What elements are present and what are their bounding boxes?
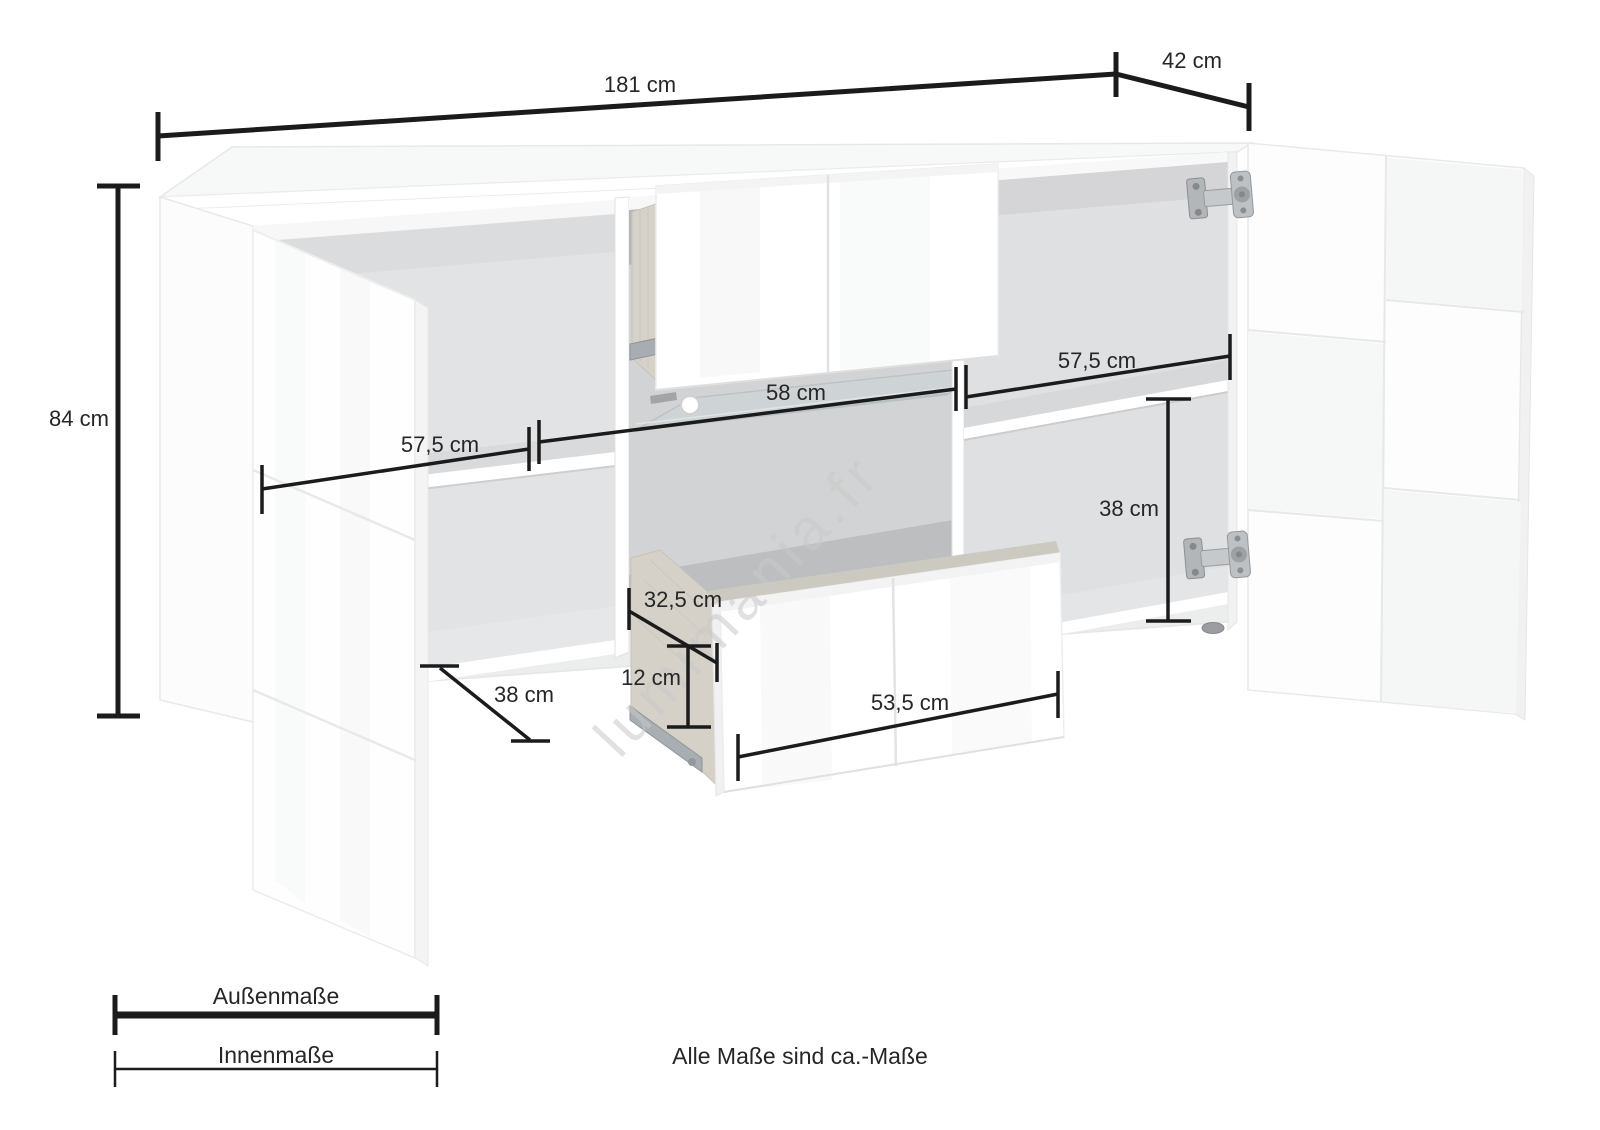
- cabinet-foot: [1202, 623, 1224, 634]
- dim-depth-total: [1116, 74, 1249, 131]
- legend-inner-label: Innenmaße: [218, 1042, 334, 1068]
- label-inner-middle-width: 58 cm: [766, 380, 826, 405]
- label-drawer-width: 53,5 cm: [871, 690, 949, 715]
- legend-outer-label: Außenmaße: [213, 983, 340, 1009]
- door-gloss: [275, 240, 305, 903]
- top-drawer: [630, 164, 998, 390]
- door-tile: [1381, 490, 1521, 714]
- label-inner-right-width: 57,5 cm: [1058, 348, 1136, 373]
- door-gloss: [340, 268, 370, 937]
- label-width-total: 181 cm: [604, 72, 676, 97]
- divider-left: [615, 197, 629, 658]
- cabinet-left-panel: [160, 197, 253, 722]
- door-tile: [1386, 158, 1524, 310]
- furniture-dimension-diagram: lumimania.fr: [0, 0, 1600, 1130]
- sideboard-diagram-svg: lumimania.fr: [0, 0, 1600, 1130]
- label-inner-left-depth: 38 cm: [494, 682, 554, 707]
- label-drawer-height: 12 cm: [621, 665, 681, 690]
- top-drawer-front: [656, 164, 998, 390]
- label-height-total: 84 cm: [49, 406, 109, 431]
- left-door: [253, 230, 428, 966]
- label-inner-right-height: 38 cm: [1099, 496, 1159, 521]
- label-drawer-depth: 32,5 cm: [644, 587, 722, 612]
- left-door-edge: [415, 300, 428, 966]
- rail-roller: [688, 758, 696, 766]
- label-depth-total: 42 cm: [1162, 48, 1222, 73]
- led-spot: [681, 396, 699, 414]
- dim-height-total: [97, 186, 140, 716]
- door-tile: [1248, 332, 1385, 519]
- note-approx-dimensions: Alle Maße sind ca.-Maße: [672, 1043, 928, 1069]
- label-inner-left-width: 57,5 cm: [401, 432, 479, 457]
